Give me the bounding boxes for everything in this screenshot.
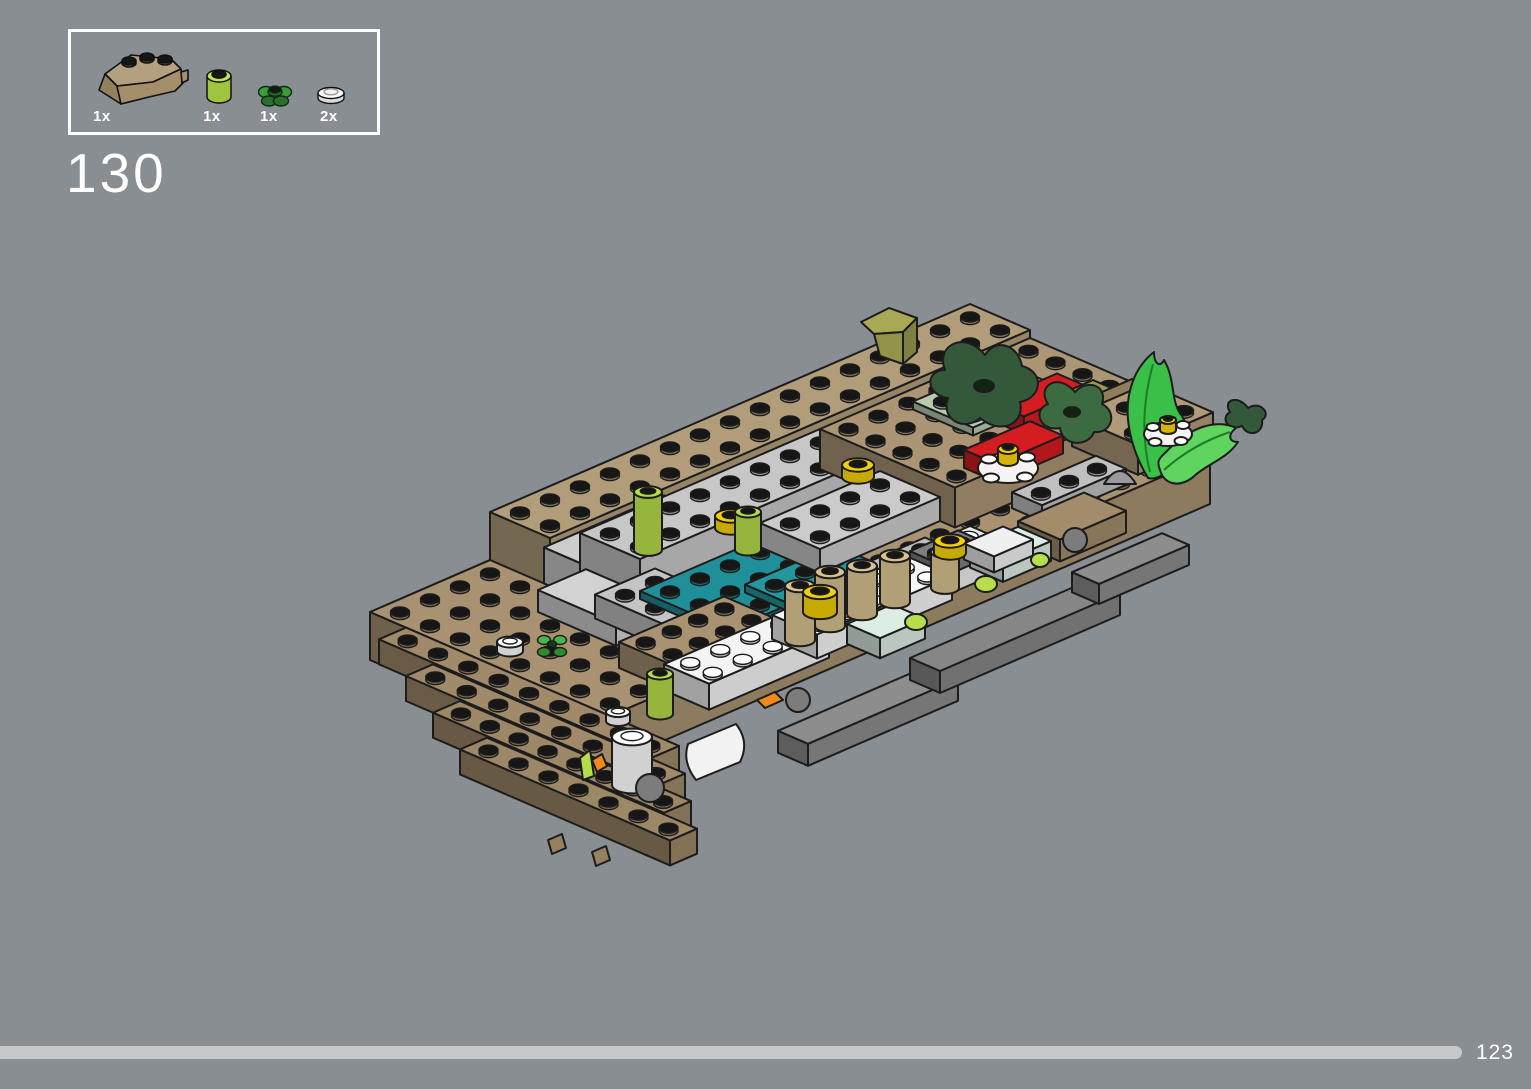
page-progress-bar[interactable]	[0, 1046, 1462, 1059]
stud	[571, 633, 590, 643]
stud	[841, 364, 860, 374]
page-number: 123	[1476, 1041, 1514, 1065]
stud	[721, 416, 740, 426]
stud	[541, 520, 560, 530]
stud	[896, 422, 915, 432]
stud	[841, 492, 860, 502]
stud	[681, 658, 700, 668]
gray-sphere	[636, 774, 664, 802]
stud	[871, 479, 890, 489]
stud	[703, 667, 722, 677]
stud	[811, 531, 830, 541]
white-round-plate	[611, 708, 624, 714]
stud	[1032, 488, 1051, 498]
stud	[583, 740, 602, 750]
stud	[480, 721, 499, 731]
stud	[901, 492, 920, 502]
stud	[451, 581, 470, 591]
lime-half-dome	[905, 614, 927, 630]
stud	[509, 758, 528, 768]
instruction-page: 1x 1x 1x 2x 130	[0, 0, 1531, 1089]
stud	[1073, 369, 1092, 379]
stud	[711, 645, 730, 655]
lime-round-brick	[741, 508, 755, 514]
stud	[1060, 476, 1079, 486]
stud	[811, 505, 830, 515]
lime-round-brick	[647, 674, 673, 719]
yellow-round-plate	[811, 587, 830, 595]
hull-foot-tab	[592, 846, 610, 866]
stud	[923, 434, 942, 444]
stud	[1019, 345, 1038, 355]
stud	[781, 518, 800, 528]
dark-plant-center	[974, 380, 994, 392]
tan-round-brick	[880, 556, 910, 608]
stud	[459, 661, 478, 671]
stud	[661, 468, 680, 478]
stud	[580, 714, 599, 724]
stud	[451, 708, 470, 718]
lime-round-brick	[640, 488, 655, 494]
stud	[451, 633, 470, 643]
stud	[751, 403, 770, 413]
yellow-round-plate	[849, 460, 867, 467]
tan-round-brick	[847, 566, 877, 620]
stud	[811, 403, 830, 413]
stud	[509, 733, 528, 743]
stud	[661, 586, 680, 596]
stud	[766, 580, 785, 590]
stud	[601, 494, 620, 504]
stud	[601, 672, 620, 682]
stud	[751, 463, 770, 473]
stud	[991, 325, 1010, 335]
stud	[571, 685, 590, 695]
stud	[781, 450, 800, 460]
stud	[541, 620, 560, 630]
stud	[869, 410, 888, 420]
stud	[479, 745, 498, 755]
stud	[661, 528, 680, 538]
stud	[451, 607, 470, 617]
stud	[947, 470, 966, 480]
tan-round-brick	[854, 562, 871, 569]
stud	[511, 507, 530, 517]
stud	[920, 458, 939, 468]
stud	[426, 672, 445, 682]
stud	[781, 476, 800, 486]
lime-half-dome	[1031, 553, 1049, 567]
tan-round-brick	[822, 568, 839, 575]
stud	[871, 377, 890, 387]
stud	[569, 784, 588, 794]
stud	[520, 713, 539, 723]
stud	[552, 727, 571, 737]
white-barrel	[621, 731, 643, 740]
stud	[481, 568, 500, 578]
stud	[781, 416, 800, 426]
stud	[961, 312, 980, 322]
stud	[781, 390, 800, 400]
stud	[539, 771, 558, 781]
stud	[751, 489, 770, 499]
stud	[631, 455, 650, 465]
stud	[841, 390, 860, 400]
stud	[629, 810, 648, 820]
stud	[841, 518, 860, 528]
stud	[636, 637, 655, 647]
stud	[1088, 463, 1107, 473]
stud	[839, 423, 858, 433]
stud	[571, 507, 590, 517]
stud	[751, 429, 770, 439]
stud	[421, 620, 440, 630]
stud	[601, 646, 620, 656]
stud	[661, 502, 680, 512]
lime-round-brick	[735, 512, 761, 555]
tan-round-brick	[887, 552, 904, 559]
stud	[662, 626, 681, 636]
white-curve-piece	[686, 724, 744, 780]
stud	[601, 468, 620, 478]
stud	[691, 489, 710, 499]
stud	[571, 659, 590, 669]
hull-foot-tab	[548, 834, 566, 854]
stud	[901, 364, 920, 374]
stud	[691, 515, 710, 525]
stud	[550, 701, 569, 711]
white-round-plate	[503, 638, 517, 644]
stud	[721, 476, 740, 486]
stud	[721, 442, 740, 452]
stud	[715, 603, 734, 613]
dark-plant-center	[1064, 407, 1080, 417]
stud	[538, 746, 557, 756]
stud	[481, 594, 500, 604]
stud	[599, 797, 618, 807]
stud	[871, 505, 890, 515]
yellow-round-plate	[941, 536, 959, 543]
stud	[457, 686, 476, 696]
stud	[721, 586, 740, 596]
stud	[421, 594, 440, 604]
lime-round-brick	[634, 492, 662, 556]
stud	[616, 590, 635, 600]
stud	[398, 635, 417, 645]
stud	[866, 435, 885, 445]
stud	[689, 614, 708, 624]
stud	[811, 377, 830, 387]
stud	[511, 659, 530, 669]
stud	[691, 573, 710, 583]
stud	[1046, 357, 1065, 367]
stud	[541, 494, 560, 504]
stud	[659, 823, 678, 833]
stud	[741, 632, 760, 642]
stud	[429, 648, 448, 658]
stud	[733, 654, 752, 664]
stud	[489, 699, 508, 709]
stud	[541, 672, 560, 682]
stud	[481, 620, 500, 630]
stud	[691, 429, 710, 439]
stud	[661, 442, 680, 452]
stud	[601, 528, 620, 538]
stud	[391, 607, 410, 617]
lego-model-illustration	[0, 0, 1531, 1089]
gray-sphere	[1063, 528, 1087, 552]
stud	[571, 481, 590, 491]
stud	[721, 560, 740, 570]
stud	[511, 581, 530, 591]
stud	[931, 325, 950, 335]
stud	[489, 674, 508, 684]
stud	[511, 607, 530, 617]
gray-sphere	[786, 688, 810, 712]
stud	[893, 447, 912, 457]
lime-round-brick	[653, 670, 667, 676]
stud	[520, 688, 539, 698]
lime-half-dome	[975, 576, 997, 592]
stud	[691, 455, 710, 465]
